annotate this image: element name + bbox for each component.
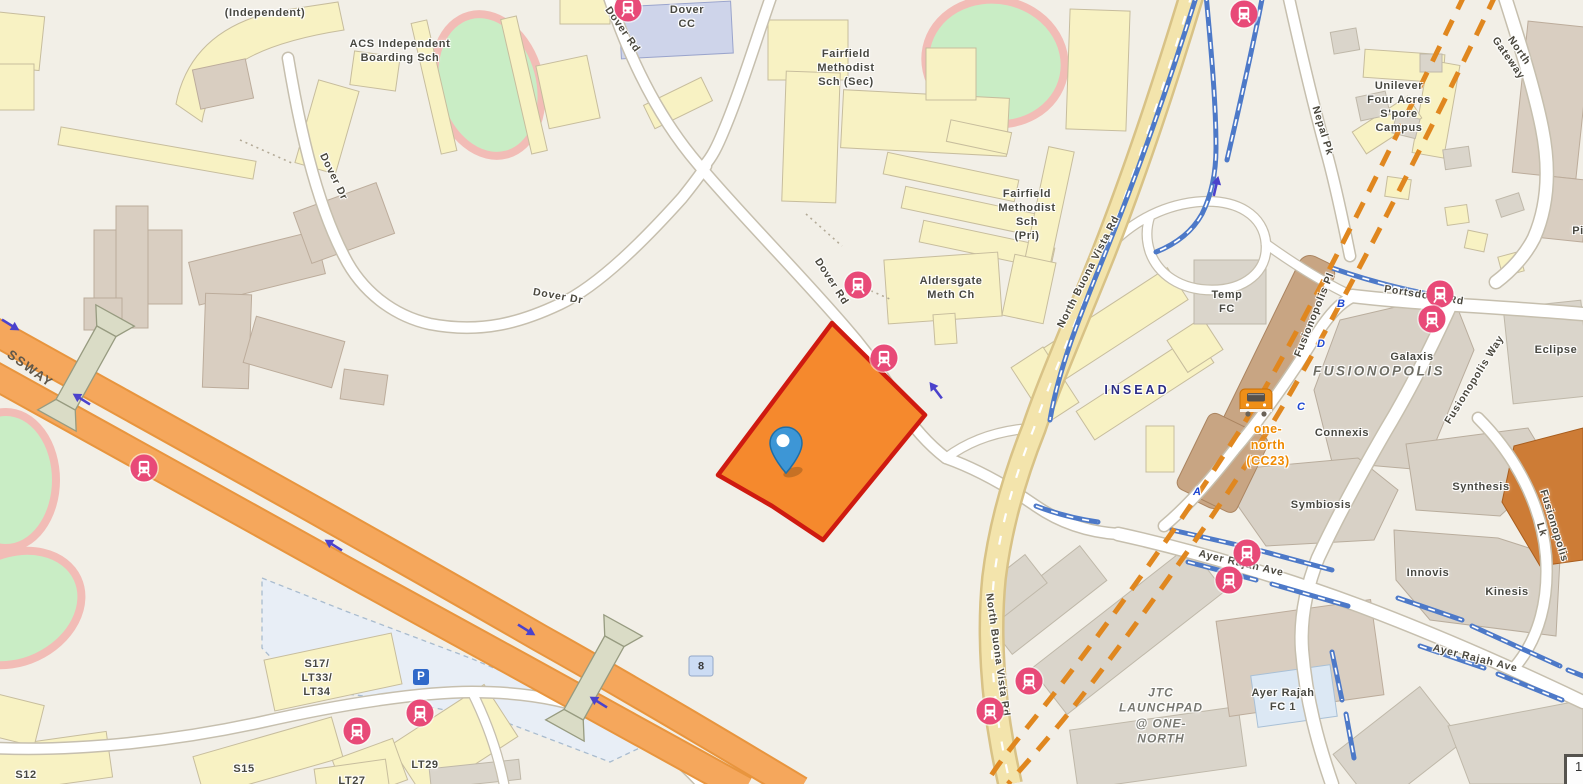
route-badge-label: 8 [698,660,704,672]
map-label-d: D [1317,337,1325,351]
bus-icon [348,722,367,741]
map-label-fairfield-methodist-sch-sec: Fairfield Methodist Sch (Sec) [817,47,874,89]
bus-icon [1235,5,1254,24]
mrt-station-icon[interactable] [1237,386,1275,418]
map-canvas[interactable]: (Independent)ACS Independent Boarding Sc… [0,0,1583,784]
map-label-eclipse: Eclipse [1535,343,1578,357]
bus-stop-icon[interactable] [1216,567,1243,594]
bus-icon [875,349,894,368]
location-pin[interactable] [768,426,804,478]
bus-icon [1020,672,1039,691]
map-label-one-north-cc23: one- north (CC23) [1246,421,1289,469]
expressway [0,328,800,784]
bus-stop-icon[interactable] [845,272,872,299]
map-label-aldersgate-meth-ch: Aldersgate Meth Ch [920,274,983,302]
bus-stop-icon[interactable] [871,345,898,372]
route-badge: 8 [689,656,714,677]
pin-icon [768,426,804,478]
bus-stop-icon[interactable] [977,698,1004,725]
bus-stop-icon[interactable] [344,718,371,745]
map-label-unilever-four-acres-s-pore-campus: Unilever Four Acres S'pore Campus [1367,79,1431,135]
map-label-insead: INSEAD [1104,382,1169,398]
map-label-independent: (Independent) [225,6,306,20]
scale-box: 1 [1564,754,1583,784]
map-label-lt27: LT27 [338,774,365,784]
bus-icon [1423,310,1442,329]
map-label-dover-cc: Dover CC [670,3,704,31]
map-label-a: A [1193,485,1201,499]
bus-icon [1431,285,1450,304]
map-label-kinesis: Kinesis [1485,585,1528,599]
parking-icon[interactable]: P [413,669,429,685]
map-label-jtc-launchpad-one-north: JTC LAUNCHPAD @ ONE- NORTH [1119,685,1203,746]
map-label-c: C [1297,400,1305,414]
bus-icon [619,0,638,18]
bus-stop-icon[interactable] [1427,281,1454,308]
map-label-b: B [1337,297,1345,311]
bus-icon [1238,544,1257,563]
scale-box-text: 1 [1575,759,1582,774]
map-label-fusionopolis: FUSIONOPOLIS [1313,362,1445,379]
map-label-s12: S12 [15,768,36,782]
bus-stop-icon[interactable] [1016,668,1043,695]
map-label-temp-fc: Temp FC [1212,288,1243,316]
map-label-connexis: Connexis [1315,426,1369,440]
train-icon [1237,386,1275,418]
parking-icon-letter: P [417,671,425,683]
bus-stop-icon[interactable] [1231,1,1258,28]
bus-stop-icon[interactable] [407,700,434,727]
map-base-layer [0,0,1583,784]
map-label-s15: S15 [233,762,254,776]
map-label-symbiosis: Symbiosis [1291,498,1351,512]
bus-stop-icon[interactable] [1419,306,1446,333]
bus-icon [981,702,1000,721]
map-label-lt29: LT29 [411,758,438,772]
bus-stop-icon[interactable] [1234,540,1261,567]
map-label-innovis: Innovis [1407,566,1450,580]
bus-icon [1220,571,1239,590]
bus-stop-icon[interactable] [131,455,158,482]
map-label-acs-independent-boarding-sch: ACS Independent Boarding Sch [350,37,451,65]
map-label-pi: Pi [1572,224,1583,238]
map-label-s17-lt33-lt34: S17/ LT33/ LT34 [302,657,333,699]
bus-icon [411,704,430,723]
map-label-synthesis: Synthesis [1452,480,1509,494]
map-label-ayer-rajah-fc-1: Ayer Rajah FC 1 [1251,686,1314,714]
map-label-fairfield-methodist-sch-pri: Fairfield Methodist Sch (Pri) [998,187,1055,243]
bus-icon [849,276,868,295]
bus-icon [135,459,154,478]
